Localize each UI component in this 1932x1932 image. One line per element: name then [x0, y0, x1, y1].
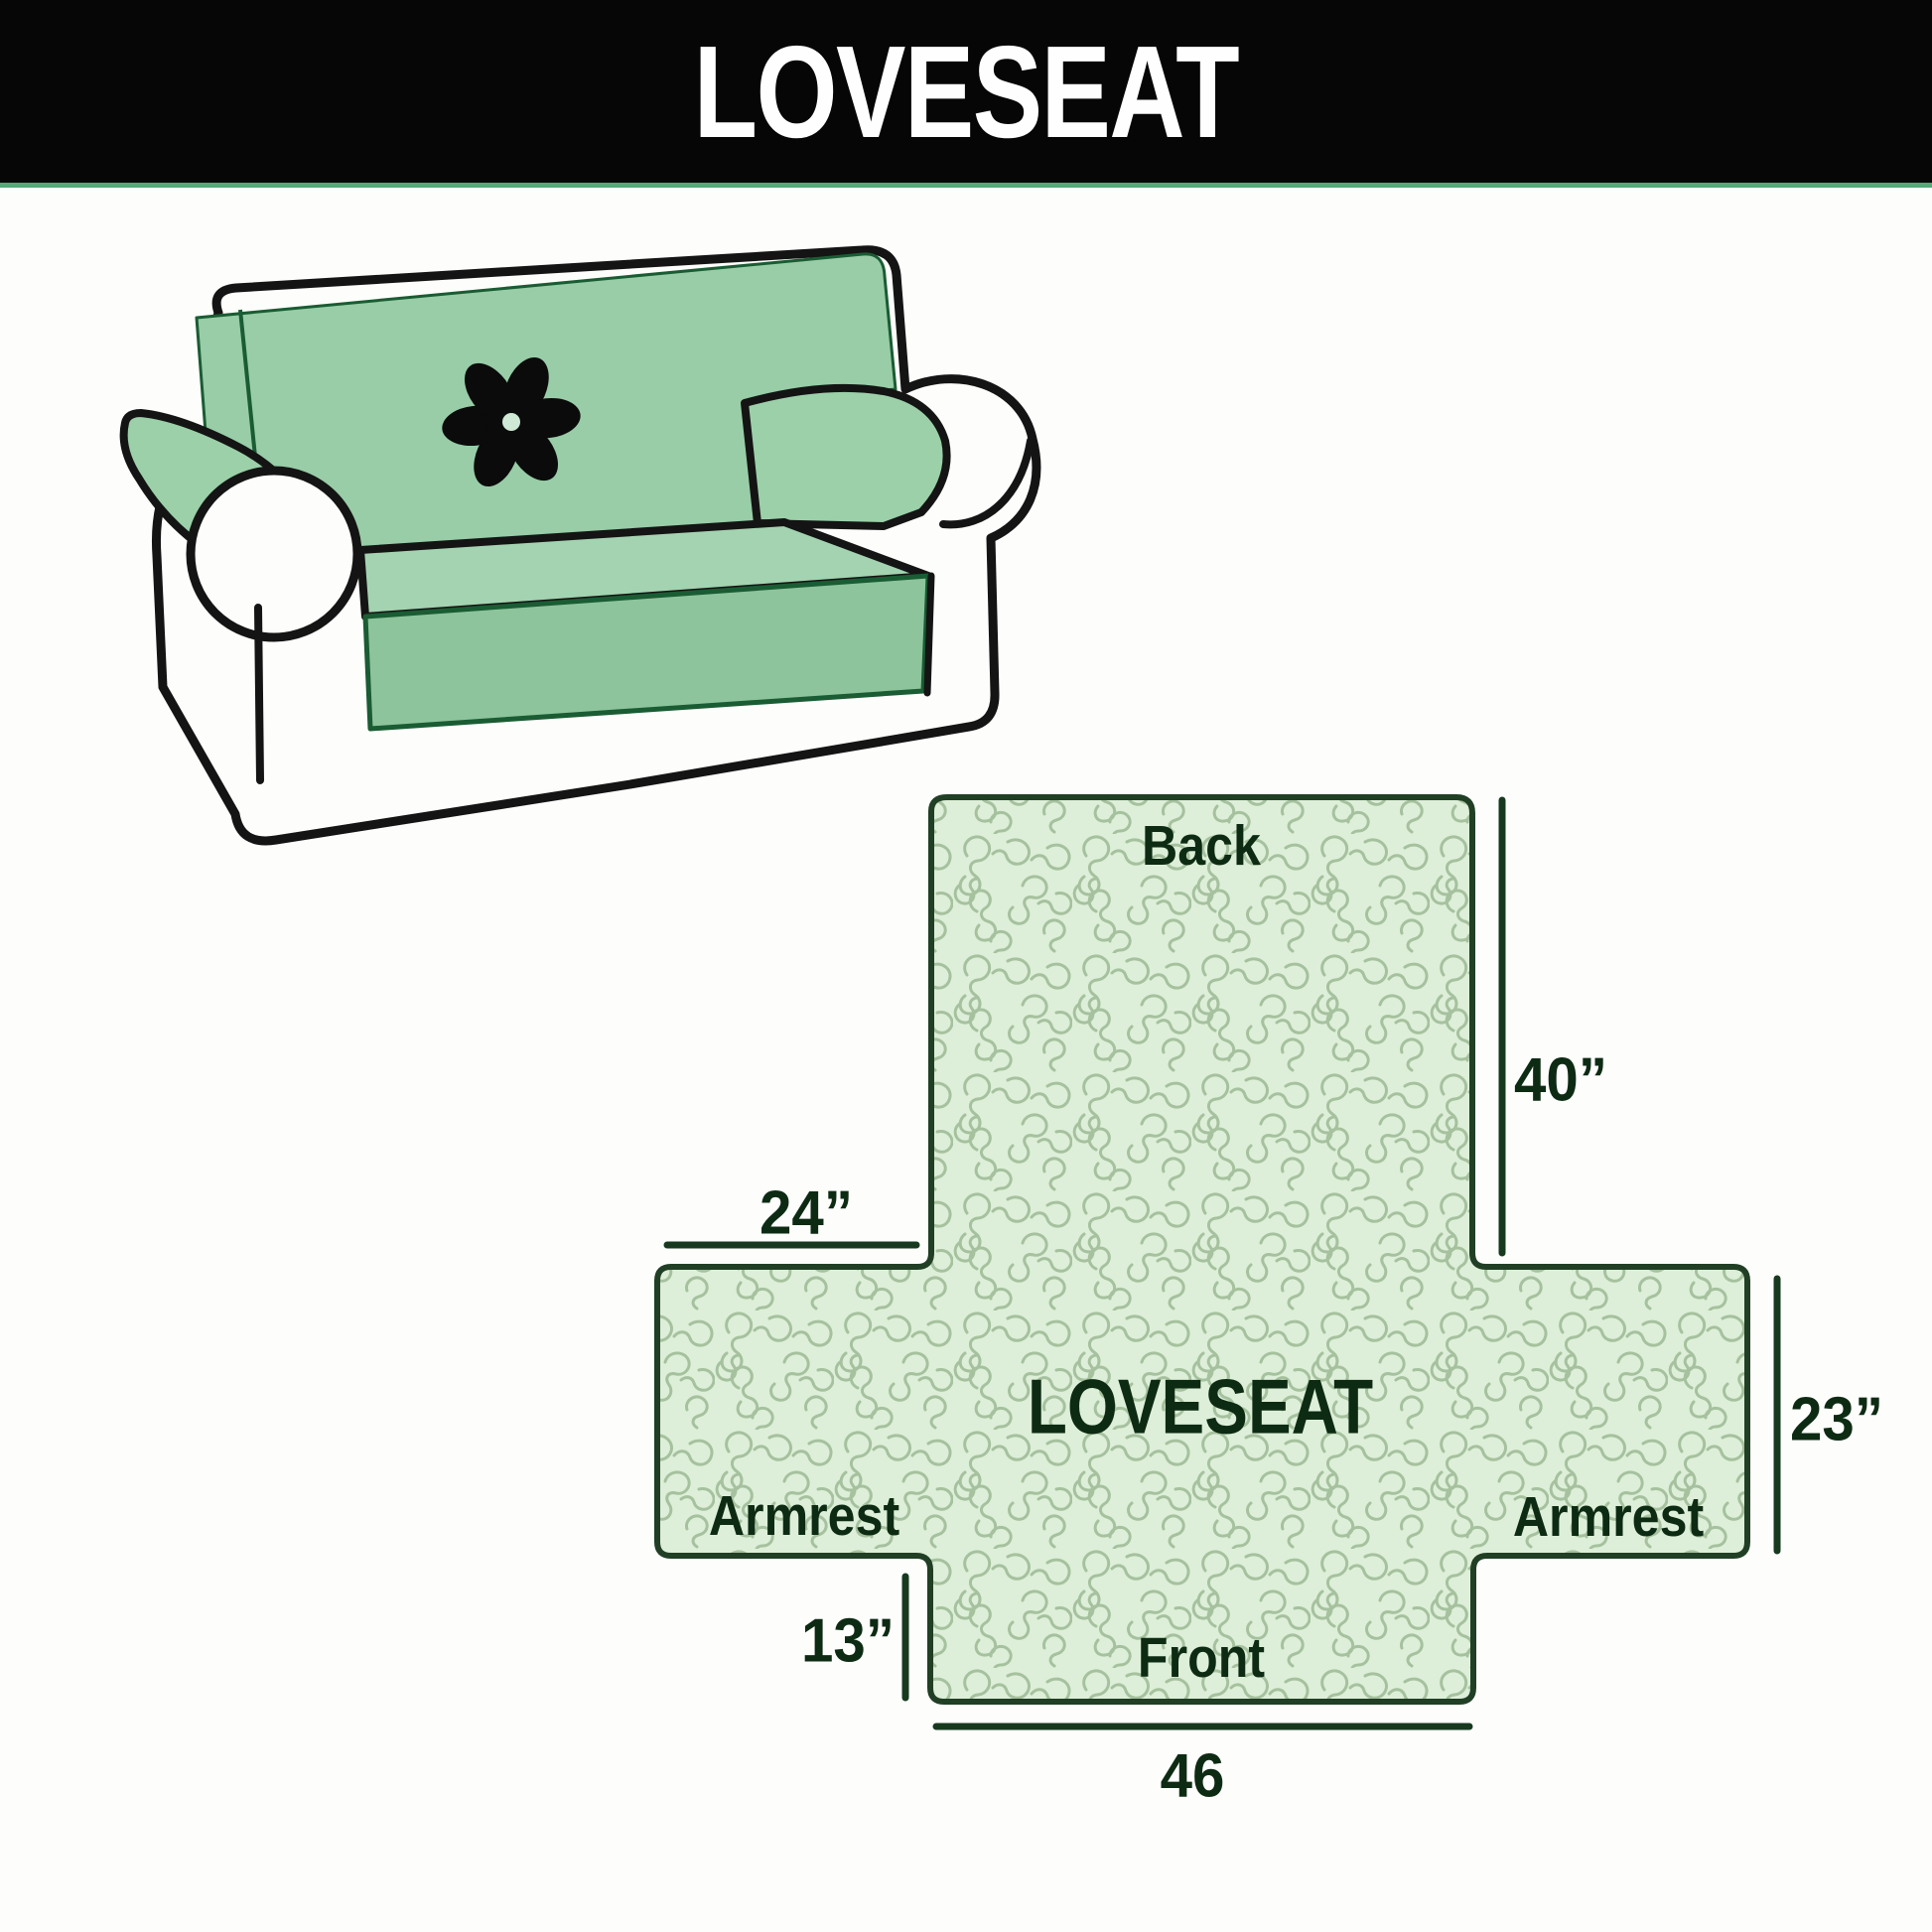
cover-outline-shape: [657, 797, 1747, 1702]
armrest-right-label: Armrest: [1513, 1484, 1704, 1550]
armrest-left-label: Armrest: [709, 1483, 899, 1549]
left-arm-front-edge: [258, 608, 260, 780]
right-armrest-cover: [745, 388, 947, 526]
dim-back-height-label: 40”: [1514, 1045, 1607, 1116]
loveseat-illustration: [89, 218, 1082, 864]
title-banner: LOVESEAT: [0, 0, 1932, 183]
dim-front-height-label: 13”: [801, 1606, 895, 1677]
diagram-center-label: LOVESEAT: [1028, 1362, 1373, 1452]
back-section-label: Back: [1142, 813, 1261, 879]
front-section-label: Front: [1138, 1625, 1265, 1691]
dim-armrest-width-label: 24”: [759, 1178, 853, 1249]
banner-accent-line: [0, 183, 1932, 188]
page-title: LOVESEAT: [694, 17, 1239, 167]
pinwheel-center-dot: [502, 413, 520, 431]
dim-armrest-height-label: 23”: [1790, 1385, 1883, 1455]
right-arm-front-edge: [927, 576, 931, 693]
left-arm-roll: [191, 471, 357, 637]
dim-front-width-label: 46: [1161, 1741, 1225, 1812]
page-background: LOVESEAT: [0, 0, 1932, 1932]
